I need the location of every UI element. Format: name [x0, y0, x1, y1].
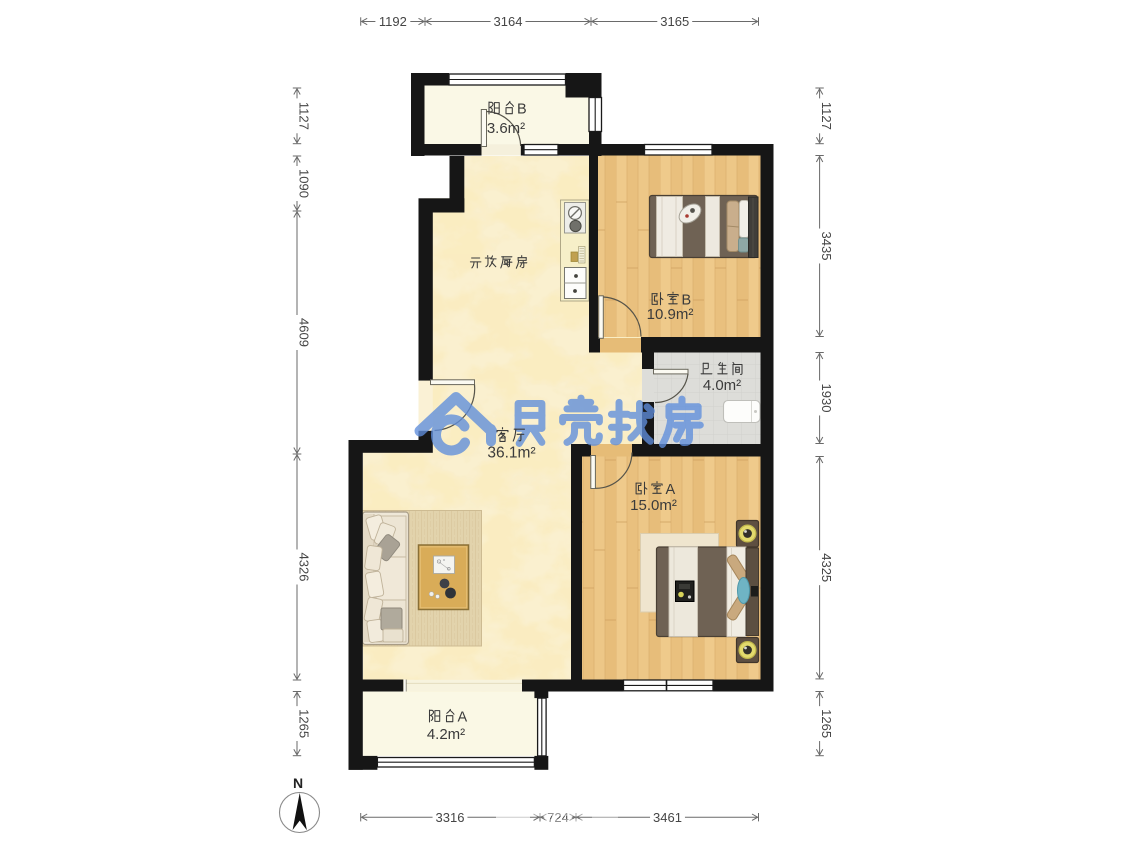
svg-text:4325: 4325 [819, 553, 834, 582]
svg-text:3435: 3435 [819, 232, 834, 261]
svg-text:15.0m²: 15.0m² [630, 497, 677, 514]
svg-text:1192: 1192 [379, 14, 407, 29]
svg-text:3461: 3461 [653, 810, 682, 825]
svg-text:1127: 1127 [819, 102, 834, 130]
svg-text:N: N [293, 775, 303, 791]
svg-text:4326: 4326 [297, 553, 312, 582]
svg-text:10.9m²: 10.9m² [647, 306, 694, 323]
svg-text:3.6m²: 3.6m² [487, 120, 525, 137]
svg-text:B: B [517, 101, 527, 117]
svg-text:36.1m²: 36.1m² [487, 444, 535, 461]
svg-text:3164: 3164 [494, 14, 523, 29]
svg-text:4.2m²: 4.2m² [427, 726, 465, 743]
svg-text:A: A [458, 709, 468, 725]
svg-text:A: A [666, 482, 676, 498]
svg-text:4.0m²: 4.0m² [703, 377, 741, 394]
svg-text:1090: 1090 [297, 169, 312, 198]
svg-text:1930: 1930 [819, 384, 834, 413]
svg-text:3316: 3316 [436, 810, 465, 825]
svg-text:1265: 1265 [297, 709, 312, 738]
svg-text:1265: 1265 [819, 709, 834, 738]
svg-text:4609: 4609 [297, 318, 312, 347]
svg-text:3165: 3165 [660, 14, 689, 29]
svg-text:1127: 1127 [297, 102, 312, 130]
